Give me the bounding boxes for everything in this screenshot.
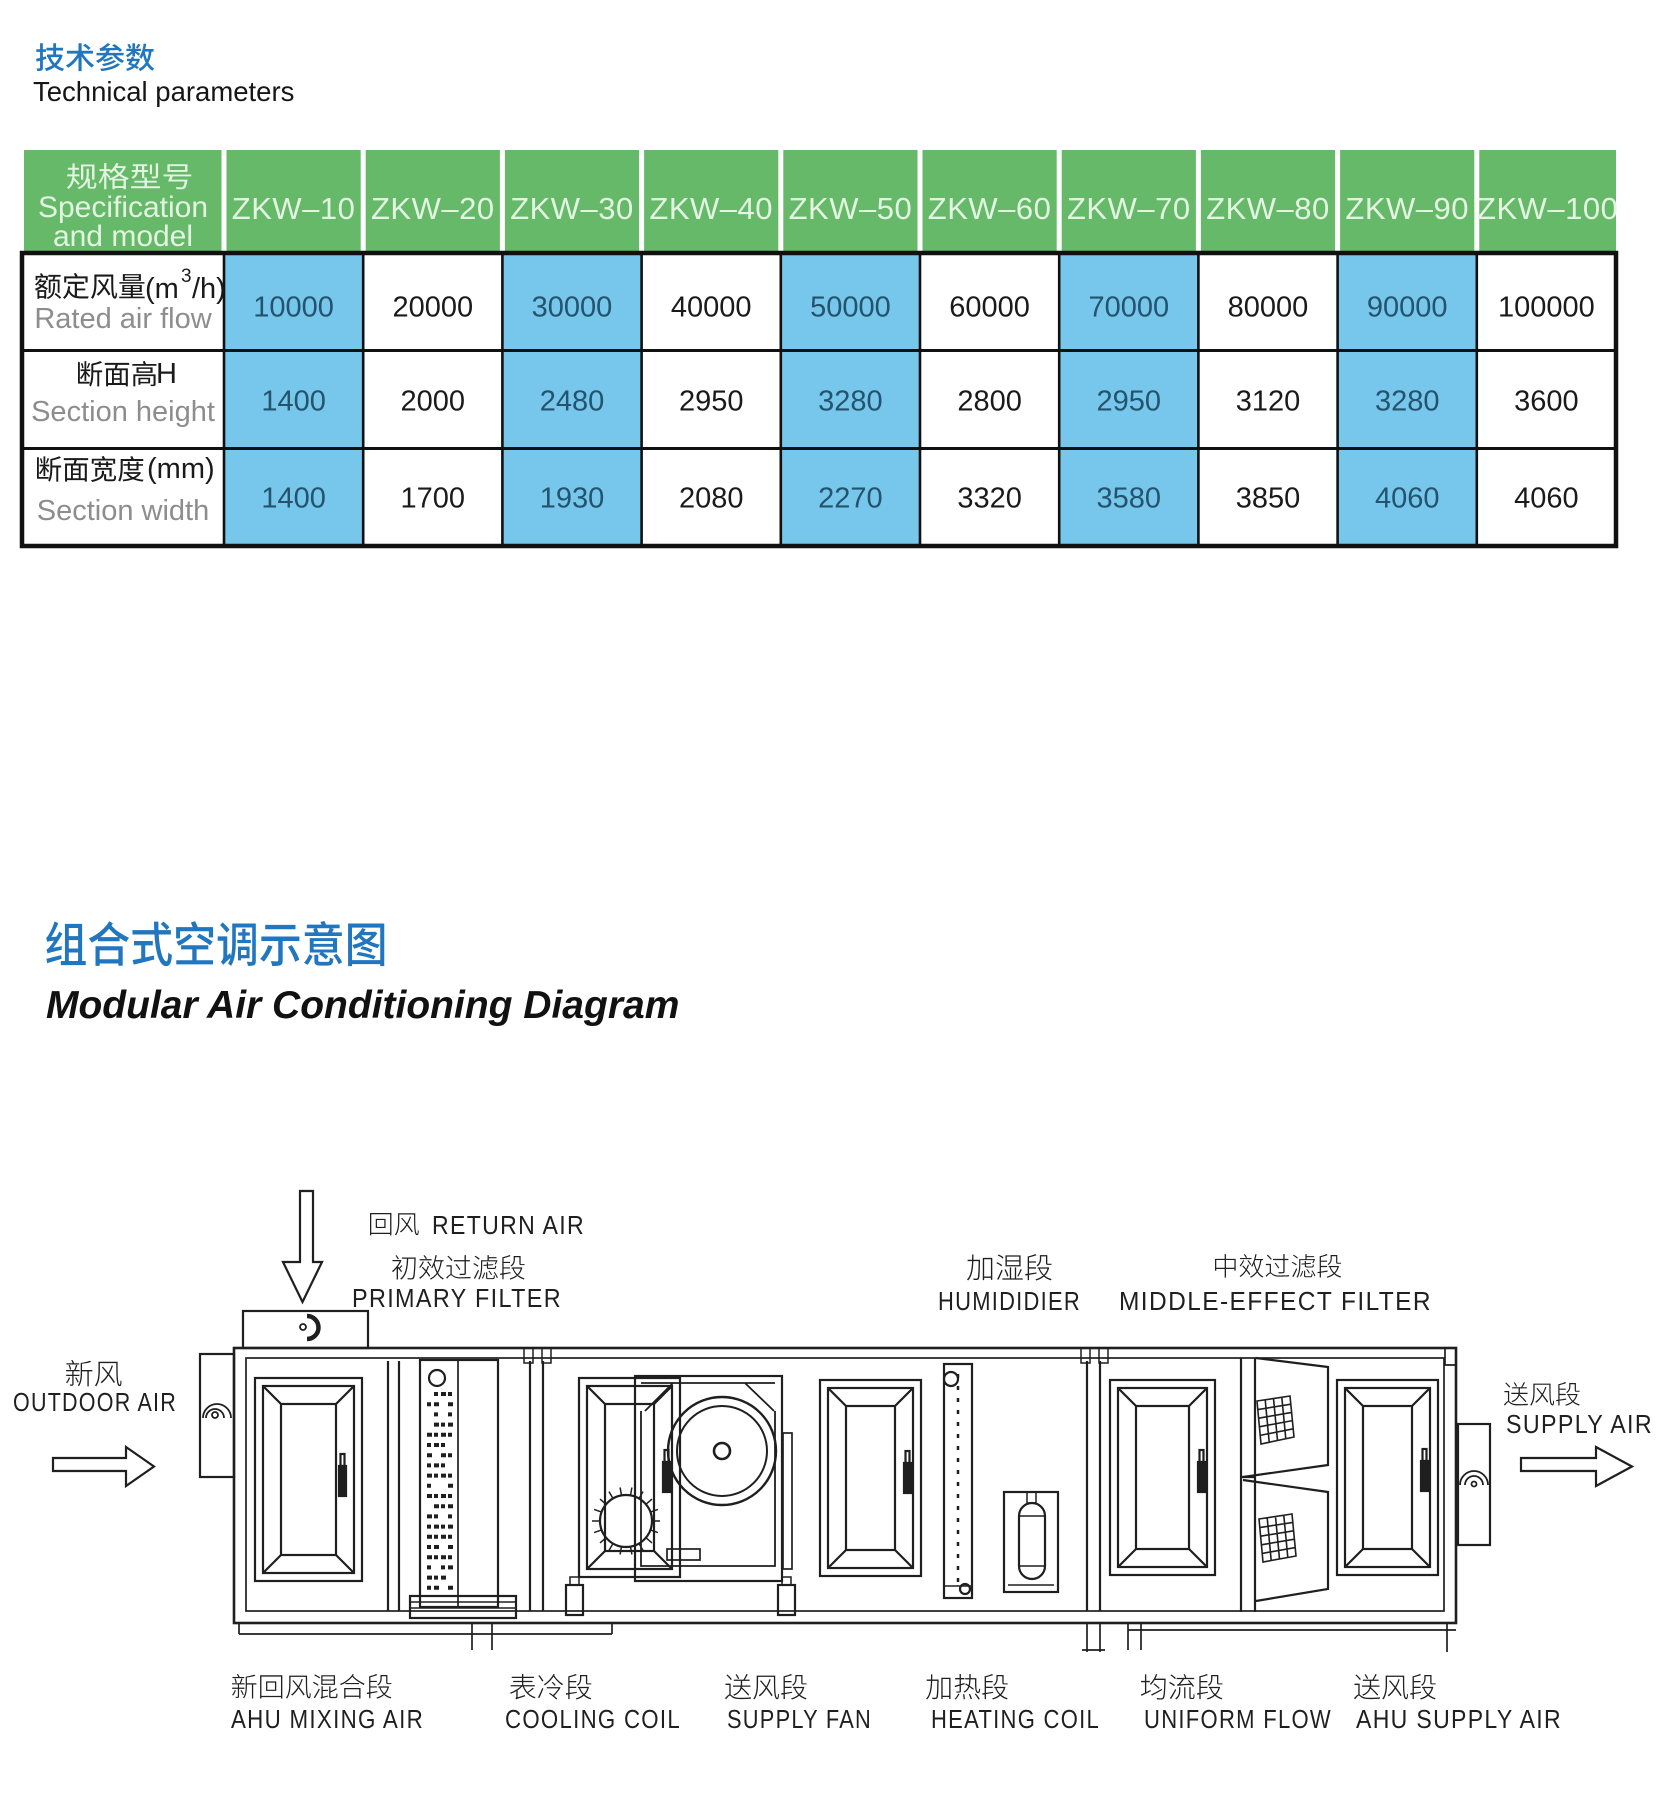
svg-text:ZKW–80: ZKW–80	[1206, 191, 1330, 226]
svg-text:2270: 2270	[818, 483, 883, 515]
svg-text:(m: (m	[145, 273, 179, 305]
svg-text:3320: 3320	[957, 483, 1022, 515]
svg-text:ZKW–10: ZKW–10	[232, 191, 356, 226]
svg-text:1930: 1930	[540, 483, 605, 515]
svg-text:and model: and model	[53, 220, 193, 253]
svg-text:2480: 2480	[540, 386, 605, 418]
svg-text:40000: 40000	[671, 292, 752, 324]
svg-text:Section height: Section height	[31, 396, 215, 428]
svg-text:(mm): (mm)	[147, 453, 215, 485]
svg-text:OUTDOOR AIR: OUTDOOR AIR	[13, 1387, 177, 1417]
svg-text:UNIFORM FLOW: UNIFORM FLOW	[1144, 1704, 1332, 1734]
svg-text:ZKW–50: ZKW–50	[789, 191, 913, 226]
svg-text:2000: 2000	[401, 386, 466, 418]
svg-text:ZKW–60: ZKW–60	[928, 191, 1052, 226]
svg-text:Section width: Section width	[37, 495, 210, 527]
svg-text:Technical parameters: Technical parameters	[33, 76, 294, 107]
svg-text:HUMIDIDIER: HUMIDIDIER	[938, 1286, 1081, 1316]
svg-text:AHU SUPPLY AIR: AHU SUPPLY AIR	[1356, 1704, 1562, 1734]
svg-text:AHU MIXING AIR: AHU MIXING AIR	[231, 1704, 424, 1734]
svg-text:2080: 2080	[679, 483, 744, 515]
svg-text:ZKW–30: ZKW–30	[510, 191, 634, 226]
svg-text:2950: 2950	[679, 386, 744, 418]
svg-text:/h): /h)	[192, 273, 226, 305]
svg-text:H: H	[156, 358, 177, 390]
svg-text:Modular Air Conditioning Diagr: Modular Air Conditioning Diagram	[46, 984, 679, 1027]
svg-text:3120: 3120	[1236, 386, 1301, 418]
svg-text:ZKW–70: ZKW–70	[1067, 191, 1191, 226]
svg-text:ZKW–100: ZKW–100	[1477, 191, 1618, 226]
svg-text:HEATING COIL: HEATING COIL	[931, 1704, 1100, 1734]
svg-text:3850: 3850	[1236, 483, 1301, 515]
svg-text:ZKW–40: ZKW–40	[649, 191, 773, 226]
svg-text:PRIMARY FILTER: PRIMARY FILTER	[352, 1283, 562, 1313]
svg-text:3: 3	[181, 266, 192, 287]
svg-text:100000: 100000	[1498, 292, 1595, 324]
svg-text:70000: 70000	[1088, 292, 1169, 324]
svg-text:ZKW–20: ZKW–20	[371, 191, 495, 226]
svg-text:1400: 1400	[261, 386, 326, 418]
svg-text:1700: 1700	[401, 483, 466, 515]
svg-text:ZKW–90: ZKW–90	[1345, 191, 1469, 226]
svg-text:3280: 3280	[818, 386, 883, 418]
svg-text:30000: 30000	[532, 292, 613, 324]
svg-text:MIDDLE-EFFECT FILTER: MIDDLE-EFFECT FILTER	[1119, 1286, 1432, 1316]
svg-text:90000: 90000	[1367, 292, 1448, 324]
svg-text:2950: 2950	[1097, 386, 1162, 418]
svg-text:50000: 50000	[810, 292, 891, 324]
svg-text:3280: 3280	[1375, 386, 1440, 418]
svg-text:20000: 20000	[392, 292, 473, 324]
svg-text:Rated air flow: Rated air flow	[34, 303, 212, 335]
svg-text:SUPPLY AIR: SUPPLY AIR	[1506, 1409, 1653, 1439]
svg-text:3600: 3600	[1514, 386, 1579, 418]
svg-text:RETURN AIR: RETURN AIR	[432, 1210, 585, 1240]
svg-text:4060: 4060	[1375, 483, 1440, 515]
svg-text:3580: 3580	[1097, 483, 1162, 515]
svg-text:COOLING COIL: COOLING COIL	[505, 1704, 681, 1734]
svg-text:10000: 10000	[253, 292, 334, 324]
svg-text:80000: 80000	[1228, 292, 1309, 324]
svg-text:SUPPLY FAN: SUPPLY FAN	[727, 1704, 872, 1734]
svg-text:2800: 2800	[957, 386, 1022, 418]
svg-text:4060: 4060	[1514, 483, 1579, 515]
svg-text:60000: 60000	[949, 292, 1030, 324]
svg-text:1400: 1400	[261, 483, 326, 515]
